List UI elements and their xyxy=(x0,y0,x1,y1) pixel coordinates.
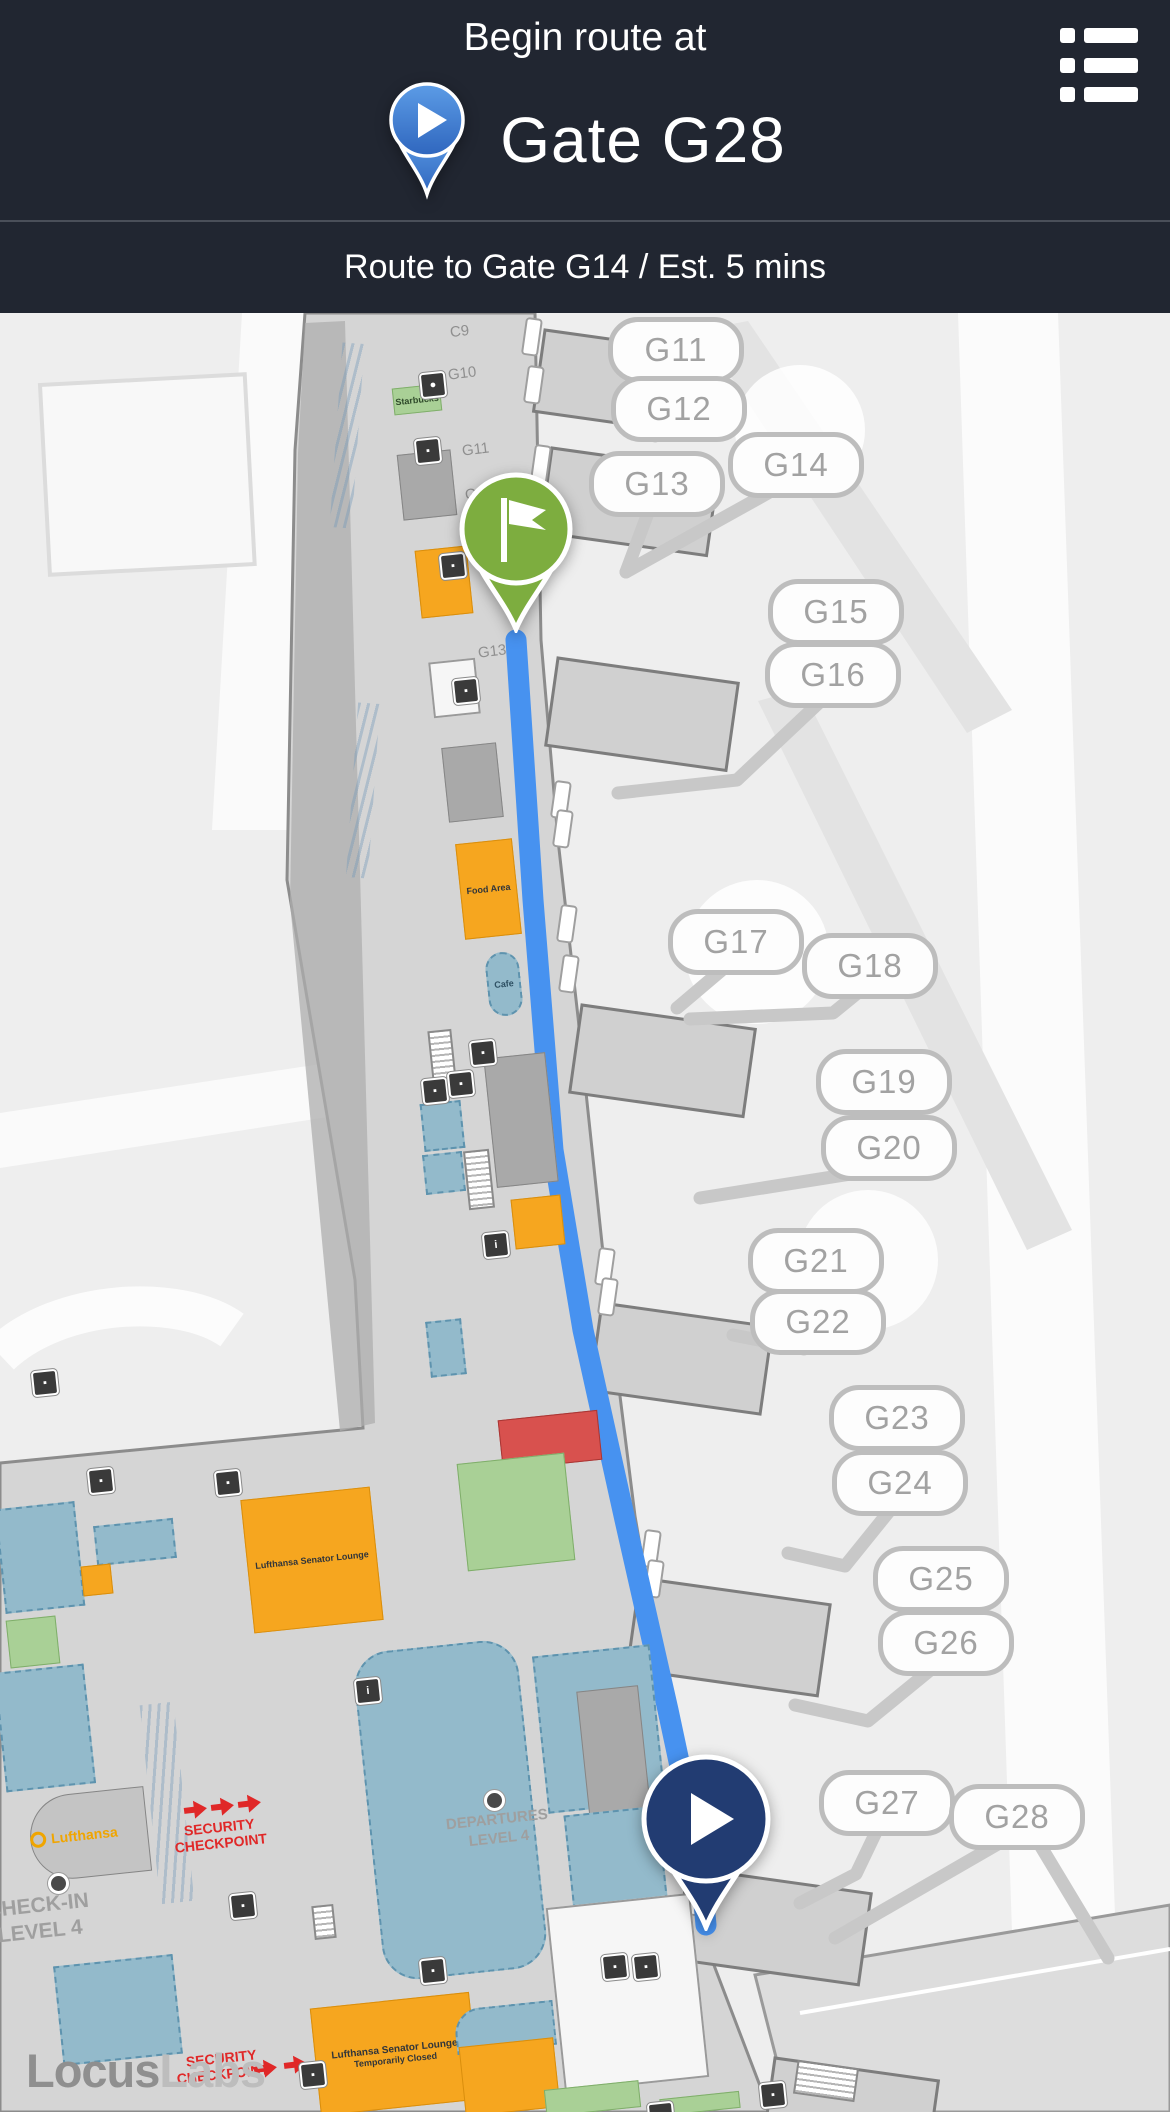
shop-block xyxy=(81,1564,114,1597)
departures-dot-icon xyxy=(484,1790,505,1811)
route-end-flag-pin[interactable] xyxy=(454,471,578,633)
gate-pill-g20[interactable]: G20 xyxy=(821,1115,957,1181)
cafe-label: Cafe xyxy=(494,978,514,990)
jet-bridge xyxy=(546,658,738,770)
shop-block xyxy=(0,1501,85,1614)
header-title: Begin route at xyxy=(0,16,1170,60)
shop-block xyxy=(93,1518,177,1566)
lounge-label: Lufthansa Senator Lounge xyxy=(255,1549,369,1571)
app-screen: Begin route at Gate G28 Route to Gate G1… xyxy=(0,0,1170,2112)
gate-pill-g25[interactable]: G25 xyxy=(873,1546,1009,1612)
gate-pill-g26[interactable]: G26 xyxy=(878,1610,1014,1676)
lufthansa-logo-icon xyxy=(29,1831,47,1849)
shop-block xyxy=(441,742,504,822)
list-icon xyxy=(1060,28,1144,43)
gate-pill-g22[interactable]: G22 xyxy=(750,1289,886,1355)
gate-pill-g16[interactable]: G16 xyxy=(765,642,901,708)
gate-pill-g21[interactable]: G21 xyxy=(748,1228,884,1294)
list-icon xyxy=(1060,87,1144,102)
header: Begin route at Gate G28 xyxy=(0,0,1170,220)
destination-pin-icon xyxy=(384,80,470,200)
list-icon xyxy=(1060,58,1144,73)
food-area[interactable]: Food Area xyxy=(455,838,522,939)
gate-pill-g11[interactable]: G11 xyxy=(608,317,744,383)
airport-map[interactable]: Starbucks Food Area Cafe Lufthansa Senat… xyxy=(0,313,1170,2112)
header-destination-row: Gate G28 xyxy=(0,70,1170,210)
building-northwest xyxy=(40,374,255,574)
gate-pill-g18[interactable]: G18 xyxy=(802,933,938,999)
shop-block xyxy=(425,1318,467,1377)
door-label-g11: G11 xyxy=(461,439,490,459)
shop-block xyxy=(0,1664,96,1793)
stairs xyxy=(311,1904,336,1940)
gate-pill-g12[interactable]: G12 xyxy=(611,376,747,442)
gate-pill-g14[interactable]: G14 xyxy=(728,432,864,498)
shop-block xyxy=(422,1151,466,1195)
route-summary-bar: Route to Gate G14 / Est. 5 mins xyxy=(0,220,1170,313)
route-start-pin[interactable] xyxy=(631,1753,781,1931)
gate-pill-g23[interactable]: G23 xyxy=(829,1385,965,1451)
flag-icon xyxy=(501,498,507,562)
shop-block xyxy=(6,1616,61,1669)
door-label-c9: C9 xyxy=(449,322,470,341)
door-label-g13: G13 xyxy=(477,641,507,661)
shop-block xyxy=(457,1453,576,1572)
gate-pill-g24[interactable]: G24 xyxy=(832,1450,968,1516)
road-curve xyxy=(0,1306,232,1355)
gate-pill-g17[interactable]: G17 xyxy=(668,909,804,975)
locuslabs-watermark: LocusLabs xyxy=(26,2043,265,2098)
gate-pill-g13[interactable]: G13 xyxy=(589,451,725,517)
gate-pill-g27[interactable]: G27 xyxy=(819,1770,955,1836)
shop-block xyxy=(511,1195,566,1250)
gate-pill-g19[interactable]: G19 xyxy=(816,1049,952,1115)
lounge-senator[interactable]: Lufthansa Senator Lounge Temporarily Clo… xyxy=(310,1992,480,2112)
gate-pill-g15[interactable]: G15 xyxy=(768,579,904,645)
destination-label: Gate G28 xyxy=(500,103,786,177)
shop-block xyxy=(420,1100,466,1152)
lounge-midfield[interactable]: Lufthansa Senator Lounge xyxy=(240,1487,383,1634)
gate-pill-g28[interactable]: G28 xyxy=(949,1784,1085,1850)
route-summary-text: Route to Gate G14 / Est. 5 mins xyxy=(344,248,826,287)
food-area-label: Food Area xyxy=(466,882,511,897)
route-list-menu-button[interactable] xyxy=(1060,28,1144,102)
door-label-g10: G10 xyxy=(447,363,477,383)
